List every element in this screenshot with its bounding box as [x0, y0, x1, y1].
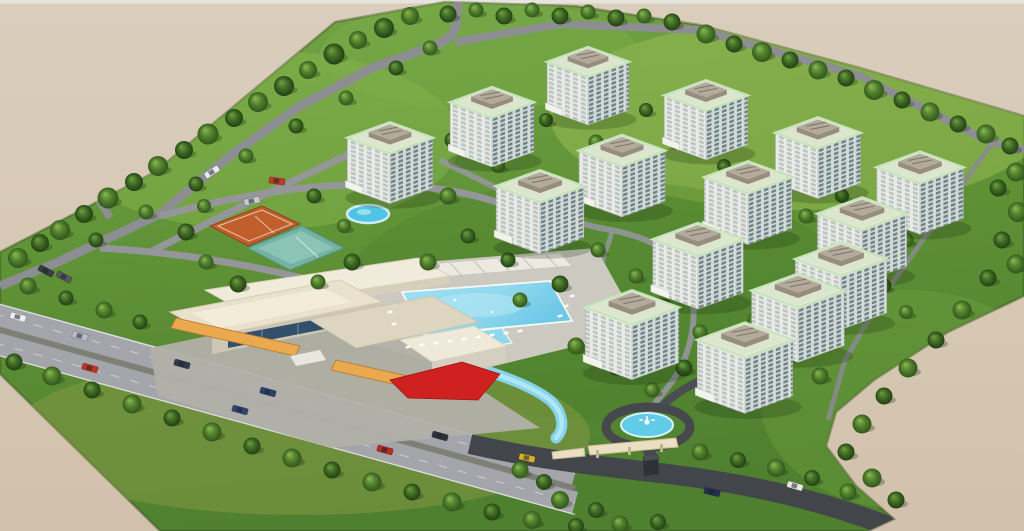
site-plan-render [0, 0, 1024, 531]
apartment-tower [583, 290, 688, 385]
screenshot-root [0, 0, 1024, 531]
apartment-tower [545, 47, 636, 130]
apartment-tower [662, 80, 755, 164]
apartment-tower [494, 170, 592, 259]
apartment-tower [448, 87, 542, 172]
apartment-tower [651, 223, 752, 314]
apartment-tower [345, 122, 441, 208]
apartment-tower [577, 135, 673, 222]
apartment-tower [695, 323, 802, 419]
